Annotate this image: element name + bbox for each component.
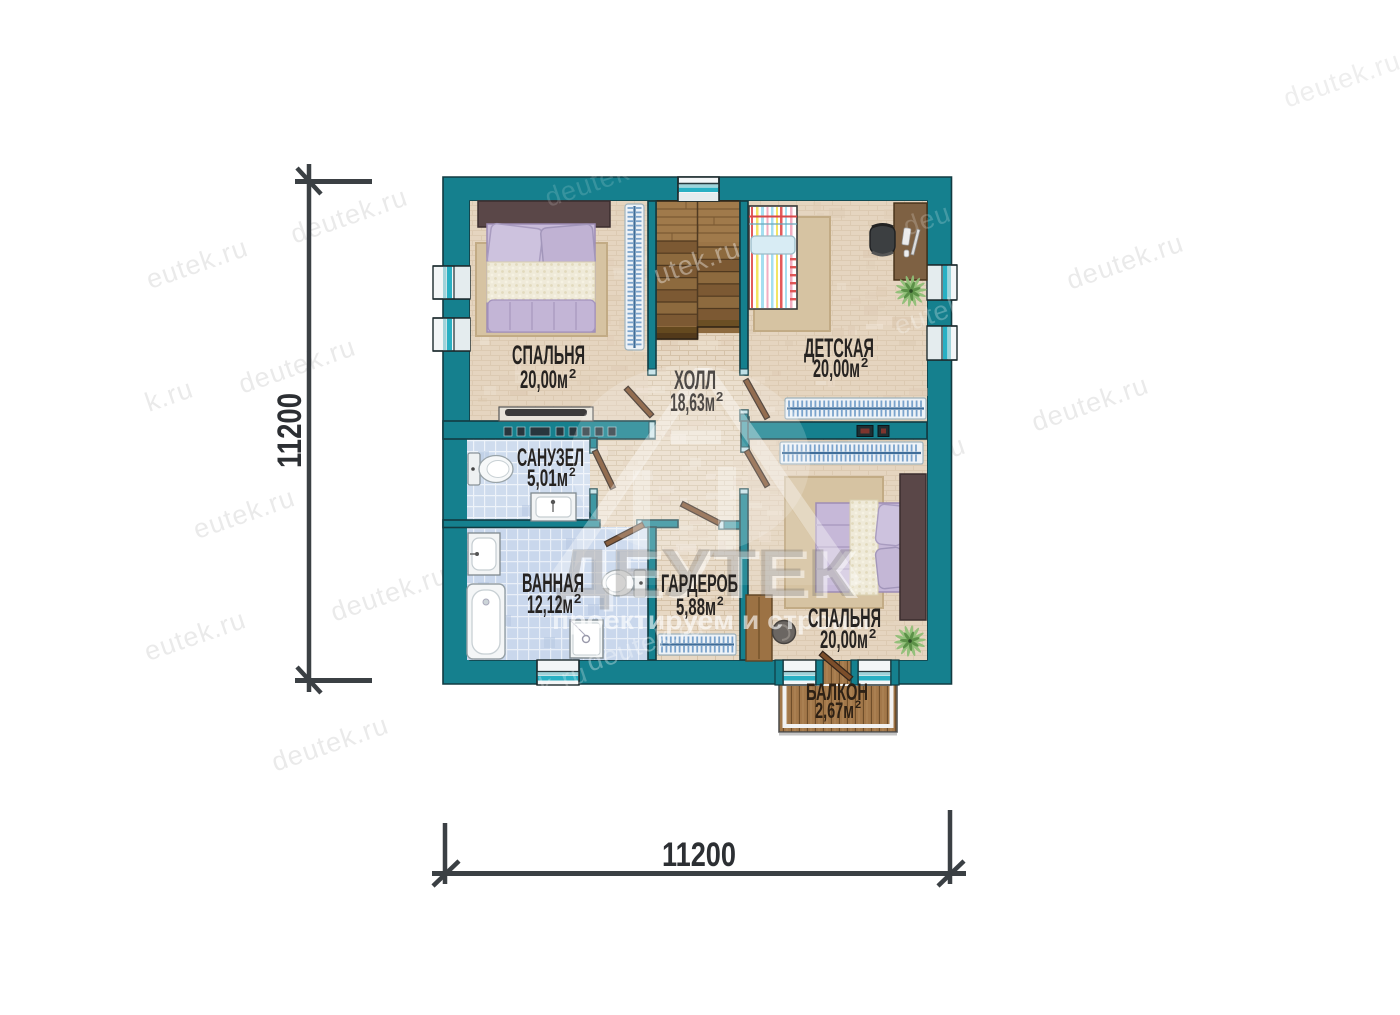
svg-text:2: 2 bbox=[574, 591, 581, 606]
svg-text:20,00м: 20,00м bbox=[520, 366, 568, 394]
svg-text:18,63м: 18,63м bbox=[670, 389, 715, 417]
svg-text:20,00м: 20,00м bbox=[813, 355, 860, 383]
svg-text:20,00м: 20,00м bbox=[820, 626, 868, 654]
svg-text:2: 2 bbox=[716, 389, 723, 404]
svg-text:2: 2 bbox=[861, 355, 868, 370]
svg-text:2: 2 bbox=[569, 465, 576, 479]
svg-text:2: 2 bbox=[717, 594, 724, 608]
svg-text:2: 2 bbox=[569, 366, 576, 381]
svg-text:2: 2 bbox=[869, 626, 876, 641]
svg-text:2: 2 bbox=[855, 699, 861, 711]
svg-text:12,12м: 12,12м bbox=[527, 591, 573, 619]
svg-text:2,67м: 2,67м bbox=[815, 698, 854, 723]
svg-text:11200: 11200 bbox=[662, 836, 736, 874]
svg-text:11200: 11200 bbox=[271, 393, 309, 468]
svg-text:5,01м: 5,01м bbox=[527, 465, 568, 492]
